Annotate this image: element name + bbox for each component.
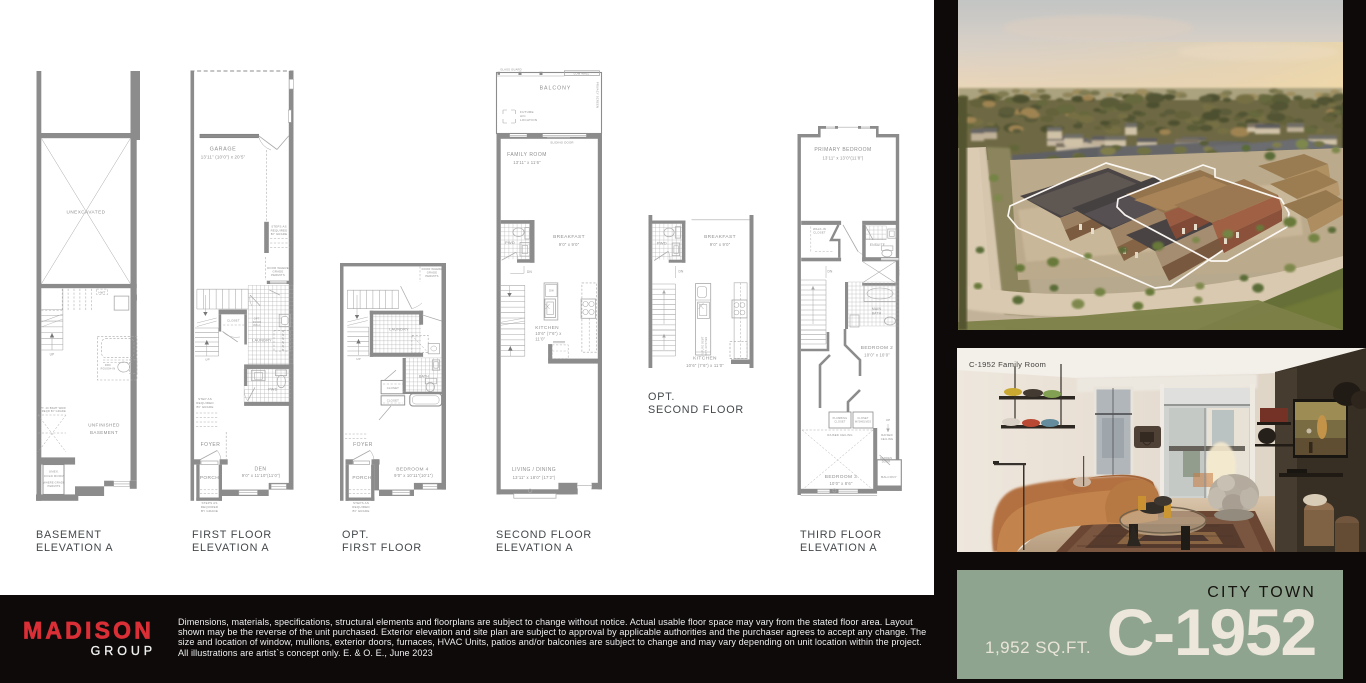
- svg-text:DEN: DEN: [254, 467, 266, 473]
- svg-text:DN: DN: [527, 270, 533, 274]
- svg-text:W/SHELVES: W/SHELVES: [855, 421, 871, 424]
- svg-text:PERMITS: PERMITS: [48, 484, 61, 488]
- svg-text:LOCATION: LOCATION: [520, 118, 537, 122]
- svg-text:FAMILY ROOM: FAMILY ROOM: [507, 152, 547, 158]
- svg-text:9’0” x 10’11”(10’1”): 9’0” x 10’11”(10’1”): [394, 473, 433, 478]
- svg-text:PRIVACY SCREEN: PRIVACY SCREEN: [596, 82, 600, 108]
- svg-text:PRIMARY BEDROOM: PRIMARY BEDROOM: [814, 147, 871, 153]
- svg-text:BY GRADE: BY GRADE: [196, 405, 213, 409]
- svg-text:DRC: DRC: [105, 363, 111, 367]
- svg-text:LAUNDRY: LAUNDRY: [389, 327, 409, 331]
- svg-text:ROUGH-IN: ROUGH-IN: [101, 366, 116, 370]
- svg-text:10’6” (7’6”) x: 10’6” (7’6”) x: [535, 331, 562, 336]
- svg-text:10’0” x 8’6”: 10’0” x 8’6”: [829, 481, 853, 486]
- svg-text:BY GRADE: BY GRADE: [271, 232, 288, 236]
- svg-text:BALCONY: BALCONY: [881, 475, 897, 479]
- svg-text:C-1952 Family Room: C-1952 Family Room: [969, 360, 1046, 369]
- svg-text:FOYER: FOYER: [353, 442, 373, 448]
- svg-text:13’11” x 13’0”(11’8”): 13’11” x 13’0”(11’8”): [822, 156, 863, 161]
- svg-text:CLOSET: CLOSET: [813, 231, 825, 235]
- svg-text:BASEMENT: BASEMENT: [90, 430, 118, 435]
- svg-text:PWD: PWD: [268, 388, 278, 392]
- svg-text:13’11” x 11’6”: 13’11” x 11’6”: [513, 160, 541, 165]
- svg-text:SLIDING DOOR: SLIDING DOOR: [550, 141, 573, 145]
- svg-text:HWT: HWT: [99, 290, 106, 294]
- svg-text:DW: DW: [549, 289, 554, 293]
- svg-text:GARAGE: GARAGE: [210, 147, 237, 153]
- svg-text:UP: UP: [50, 353, 55, 357]
- svg-text:9’0” x 9’0”: 9’0” x 9’0”: [559, 242, 580, 247]
- svg-text:DN: DN: [678, 270, 684, 274]
- svg-text:LOW WALL: LOW WALL: [574, 71, 590, 75]
- svg-text:ENSUITE: ENSUITE: [870, 243, 885, 247]
- svg-text:BREAKFAST: BREAKFAST: [553, 234, 585, 240]
- svg-text:BREAKFAST: BREAKFAST: [704, 234, 736, 240]
- svg-text:DN: DN: [827, 270, 833, 274]
- svg-text:BALCONY: BALCONY: [540, 86, 572, 92]
- svg-text:LIVING / DINING: LIVING / DINING: [512, 467, 556, 473]
- svg-text:BY GRADE: BY GRADE: [352, 509, 369, 513]
- svg-text:9’0” x 9’0”: 9’0” x 9’0”: [710, 242, 731, 247]
- svg-text:10’6” (7’6”) x 11’0”: 10’6” (7’6”) x 11’0”: [686, 363, 724, 368]
- svg-text:UP: UP: [886, 418, 891, 422]
- svg-text:PORCH: PORCH: [200, 475, 219, 481]
- svg-text:COLD ROOM: COLD ROOM: [44, 474, 65, 478]
- svg-text:OPT. KITCHEN: OPT. KITCHEN: [705, 336, 708, 355]
- svg-text:GRADE: GRADE: [427, 271, 438, 275]
- svg-text:13’11” x 18’0” (17’2”): 13’11” x 18’0” (17’2”): [513, 475, 556, 480]
- svg-text:PWD: PWD: [657, 241, 667, 246]
- svg-text:11’0”: 11’0”: [535, 336, 545, 341]
- svg-text:LAUNDRY: LAUNDRY: [252, 338, 272, 342]
- svg-text:GLASS GUARD: GLASS GUARD: [500, 68, 522, 72]
- svg-text:BATH: BATH: [419, 374, 429, 378]
- svg-text:KITCHEN: KITCHEN: [693, 356, 717, 362]
- svg-text:PERMITS: PERMITS: [271, 273, 285, 277]
- svg-text:UP: UP: [356, 357, 361, 361]
- svg-text:CLOSET: CLOSET: [834, 421, 845, 424]
- svg-text:RAISED CEILING: RAISED CEILING: [827, 433, 852, 437]
- svg-text:FOYER: FOYER: [201, 442, 221, 448]
- svg-text:PORCH: PORCH: [352, 475, 371, 481]
- svg-text:BEDROOM 3: BEDROOM 3: [825, 474, 857, 480]
- svg-text:UNFINISHED: UNFINISHED: [88, 423, 120, 428]
- svg-text:DOOR WHERE: DOOR WHERE: [422, 267, 443, 271]
- svg-text:PERMITS: PERMITS: [425, 274, 438, 278]
- svg-text:9’0” x 11’10”(11’0”): 9’0” x 11’10”(11’0”): [242, 473, 281, 478]
- svg-text:IF REQD BY GRADE: IF REQD BY GRADE: [38, 409, 66, 413]
- svg-text:MAIN: MAIN: [872, 307, 882, 311]
- svg-text:CLOSET: CLOSET: [387, 386, 399, 390]
- svg-text:UNEX.: UNEX.: [49, 470, 59, 474]
- svg-text:LINEN: LINEN: [896, 267, 900, 276]
- svg-text:BATH: BATH: [872, 312, 882, 316]
- svg-text:13’11” (10’0”) x 20’5”: 13’11” (10’0”) x 20’5”: [201, 155, 246, 160]
- svg-text:CLOSET: CLOSET: [227, 318, 240, 322]
- svg-text:UNEXCAVATED: UNEXCAVATED: [67, 210, 106, 215]
- svg-text:BY GRADE: BY GRADE: [201, 509, 218, 513]
- svg-text:BEDROOM 2: BEDROOM 2: [861, 345, 893, 351]
- svg-text:WHERE GRADE: WHERE GRADE: [43, 481, 65, 485]
- svg-text:CEILING: CEILING: [881, 437, 894, 441]
- svg-text:CLOSET: CLOSET: [387, 399, 399, 403]
- svg-text:BEDROOM 4: BEDROOM 4: [396, 467, 428, 473]
- svg-text:WALL: WALL: [253, 323, 261, 327]
- svg-text:PWD: PWD: [505, 240, 515, 245]
- svg-text:UP: UP: [205, 358, 210, 362]
- svg-text:10’0” x 10’0”: 10’0” x 10’0”: [864, 353, 890, 358]
